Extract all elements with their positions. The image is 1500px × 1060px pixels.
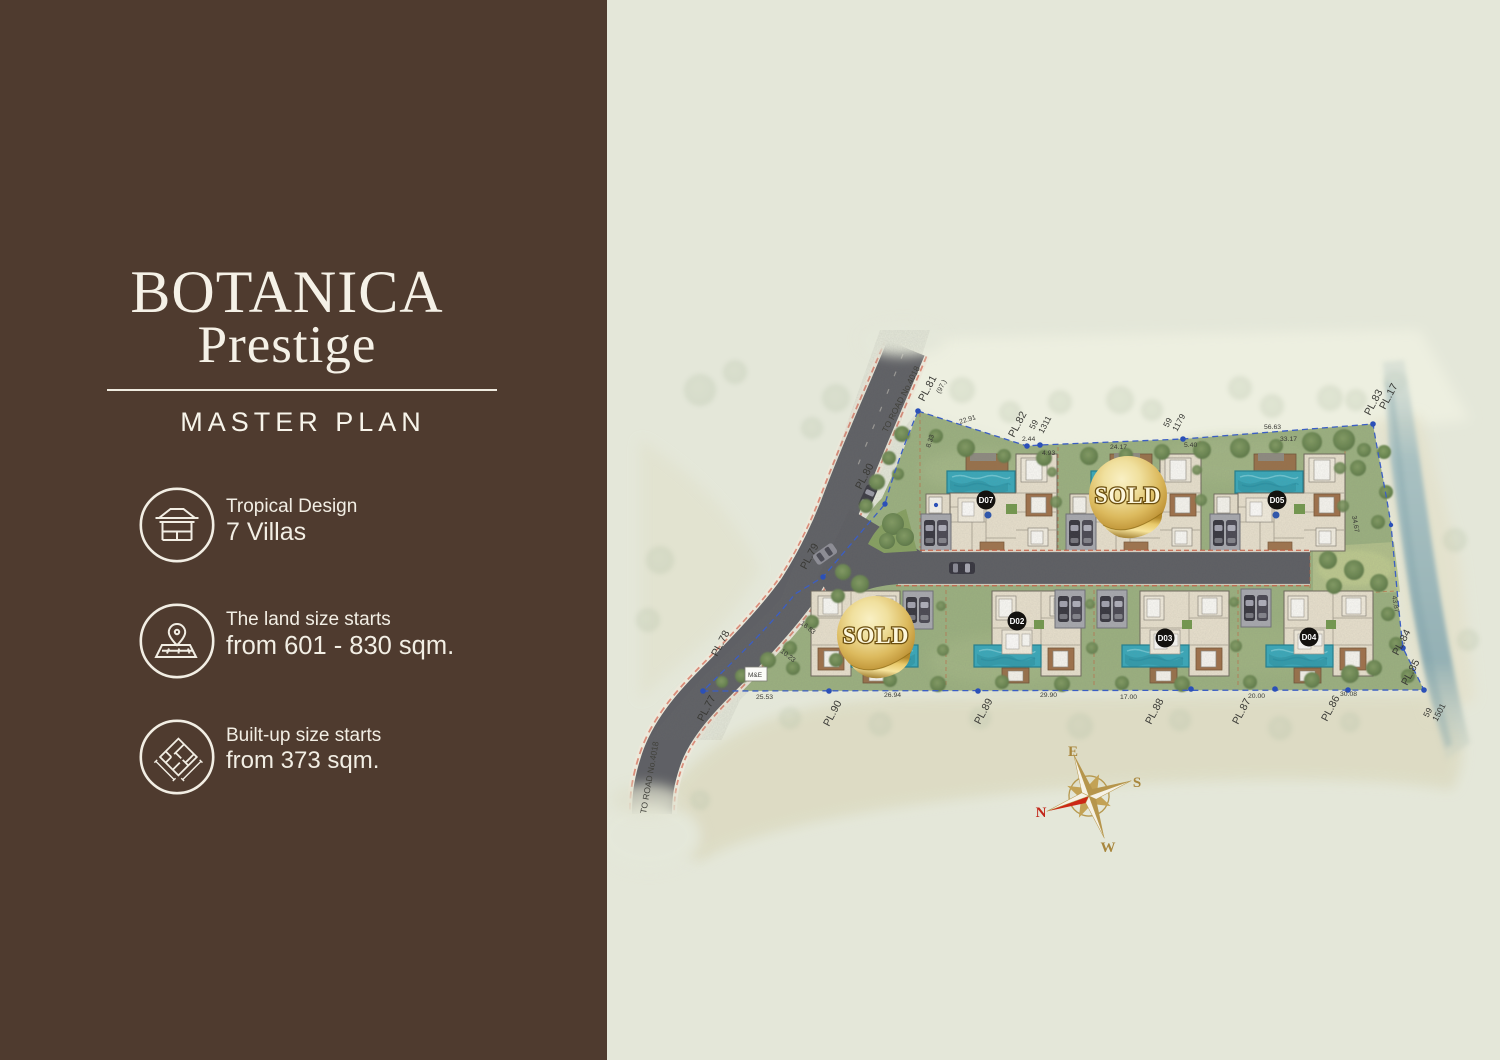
svg-text:25.53: 25.53 bbox=[756, 694, 773, 701]
svg-text:D02: D02 bbox=[1010, 617, 1025, 626]
svg-text:5.40: 5.40 bbox=[1184, 442, 1197, 449]
svg-text:4.93: 4.93 bbox=[1042, 450, 1055, 457]
svg-text:26.94: 26.94 bbox=[884, 692, 901, 699]
svg-text:56.63: 56.63 bbox=[1264, 424, 1281, 431]
svg-text:24.17: 24.17 bbox=[1110, 444, 1127, 451]
svg-text:D05: D05 bbox=[1270, 496, 1285, 505]
svg-text:2.44: 2.44 bbox=[1022, 436, 1035, 443]
svg-text:N: N bbox=[1036, 805, 1047, 821]
svg-text:M&E: M&E bbox=[748, 672, 763, 679]
svg-text:E: E bbox=[1068, 744, 1078, 760]
svg-text:S: S bbox=[1133, 775, 1141, 791]
svg-text:D04: D04 bbox=[1302, 633, 1317, 642]
svg-text:D03: D03 bbox=[1158, 634, 1173, 643]
svg-text:30.08: 30.08 bbox=[1340, 691, 1357, 698]
svg-text:D07: D07 bbox=[979, 496, 994, 505]
svg-text:17.00: 17.00 bbox=[1120, 694, 1137, 701]
svg-text:20.00: 20.00 bbox=[1248, 693, 1265, 700]
svg-text:W: W bbox=[1101, 840, 1116, 856]
svg-text:29.90: 29.90 bbox=[1040, 692, 1057, 699]
svg-text:33.17: 33.17 bbox=[1280, 436, 1297, 443]
